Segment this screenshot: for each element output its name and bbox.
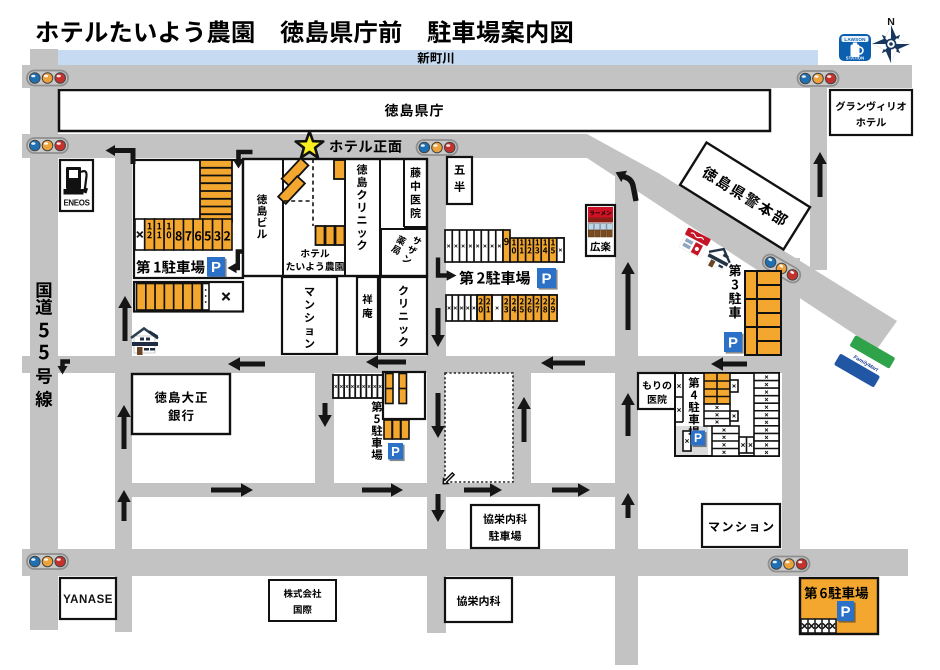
svg-text:P: P: [728, 335, 738, 352]
svg-text:N: N: [887, 16, 895, 28]
svg-text:P: P: [211, 259, 221, 276]
svg-text:STATION: STATION: [846, 56, 864, 61]
svg-text:ENEOS: ENEOS: [63, 199, 89, 208]
svg-text:LAWSON: LAWSON: [844, 37, 866, 42]
svg-text:YANASE: YANASE: [63, 594, 113, 606]
svg-text:P: P: [391, 444, 400, 459]
svg-text:P: P: [541, 271, 551, 288]
svg-text:P: P: [840, 604, 850, 621]
svg-text:P: P: [694, 431, 702, 445]
